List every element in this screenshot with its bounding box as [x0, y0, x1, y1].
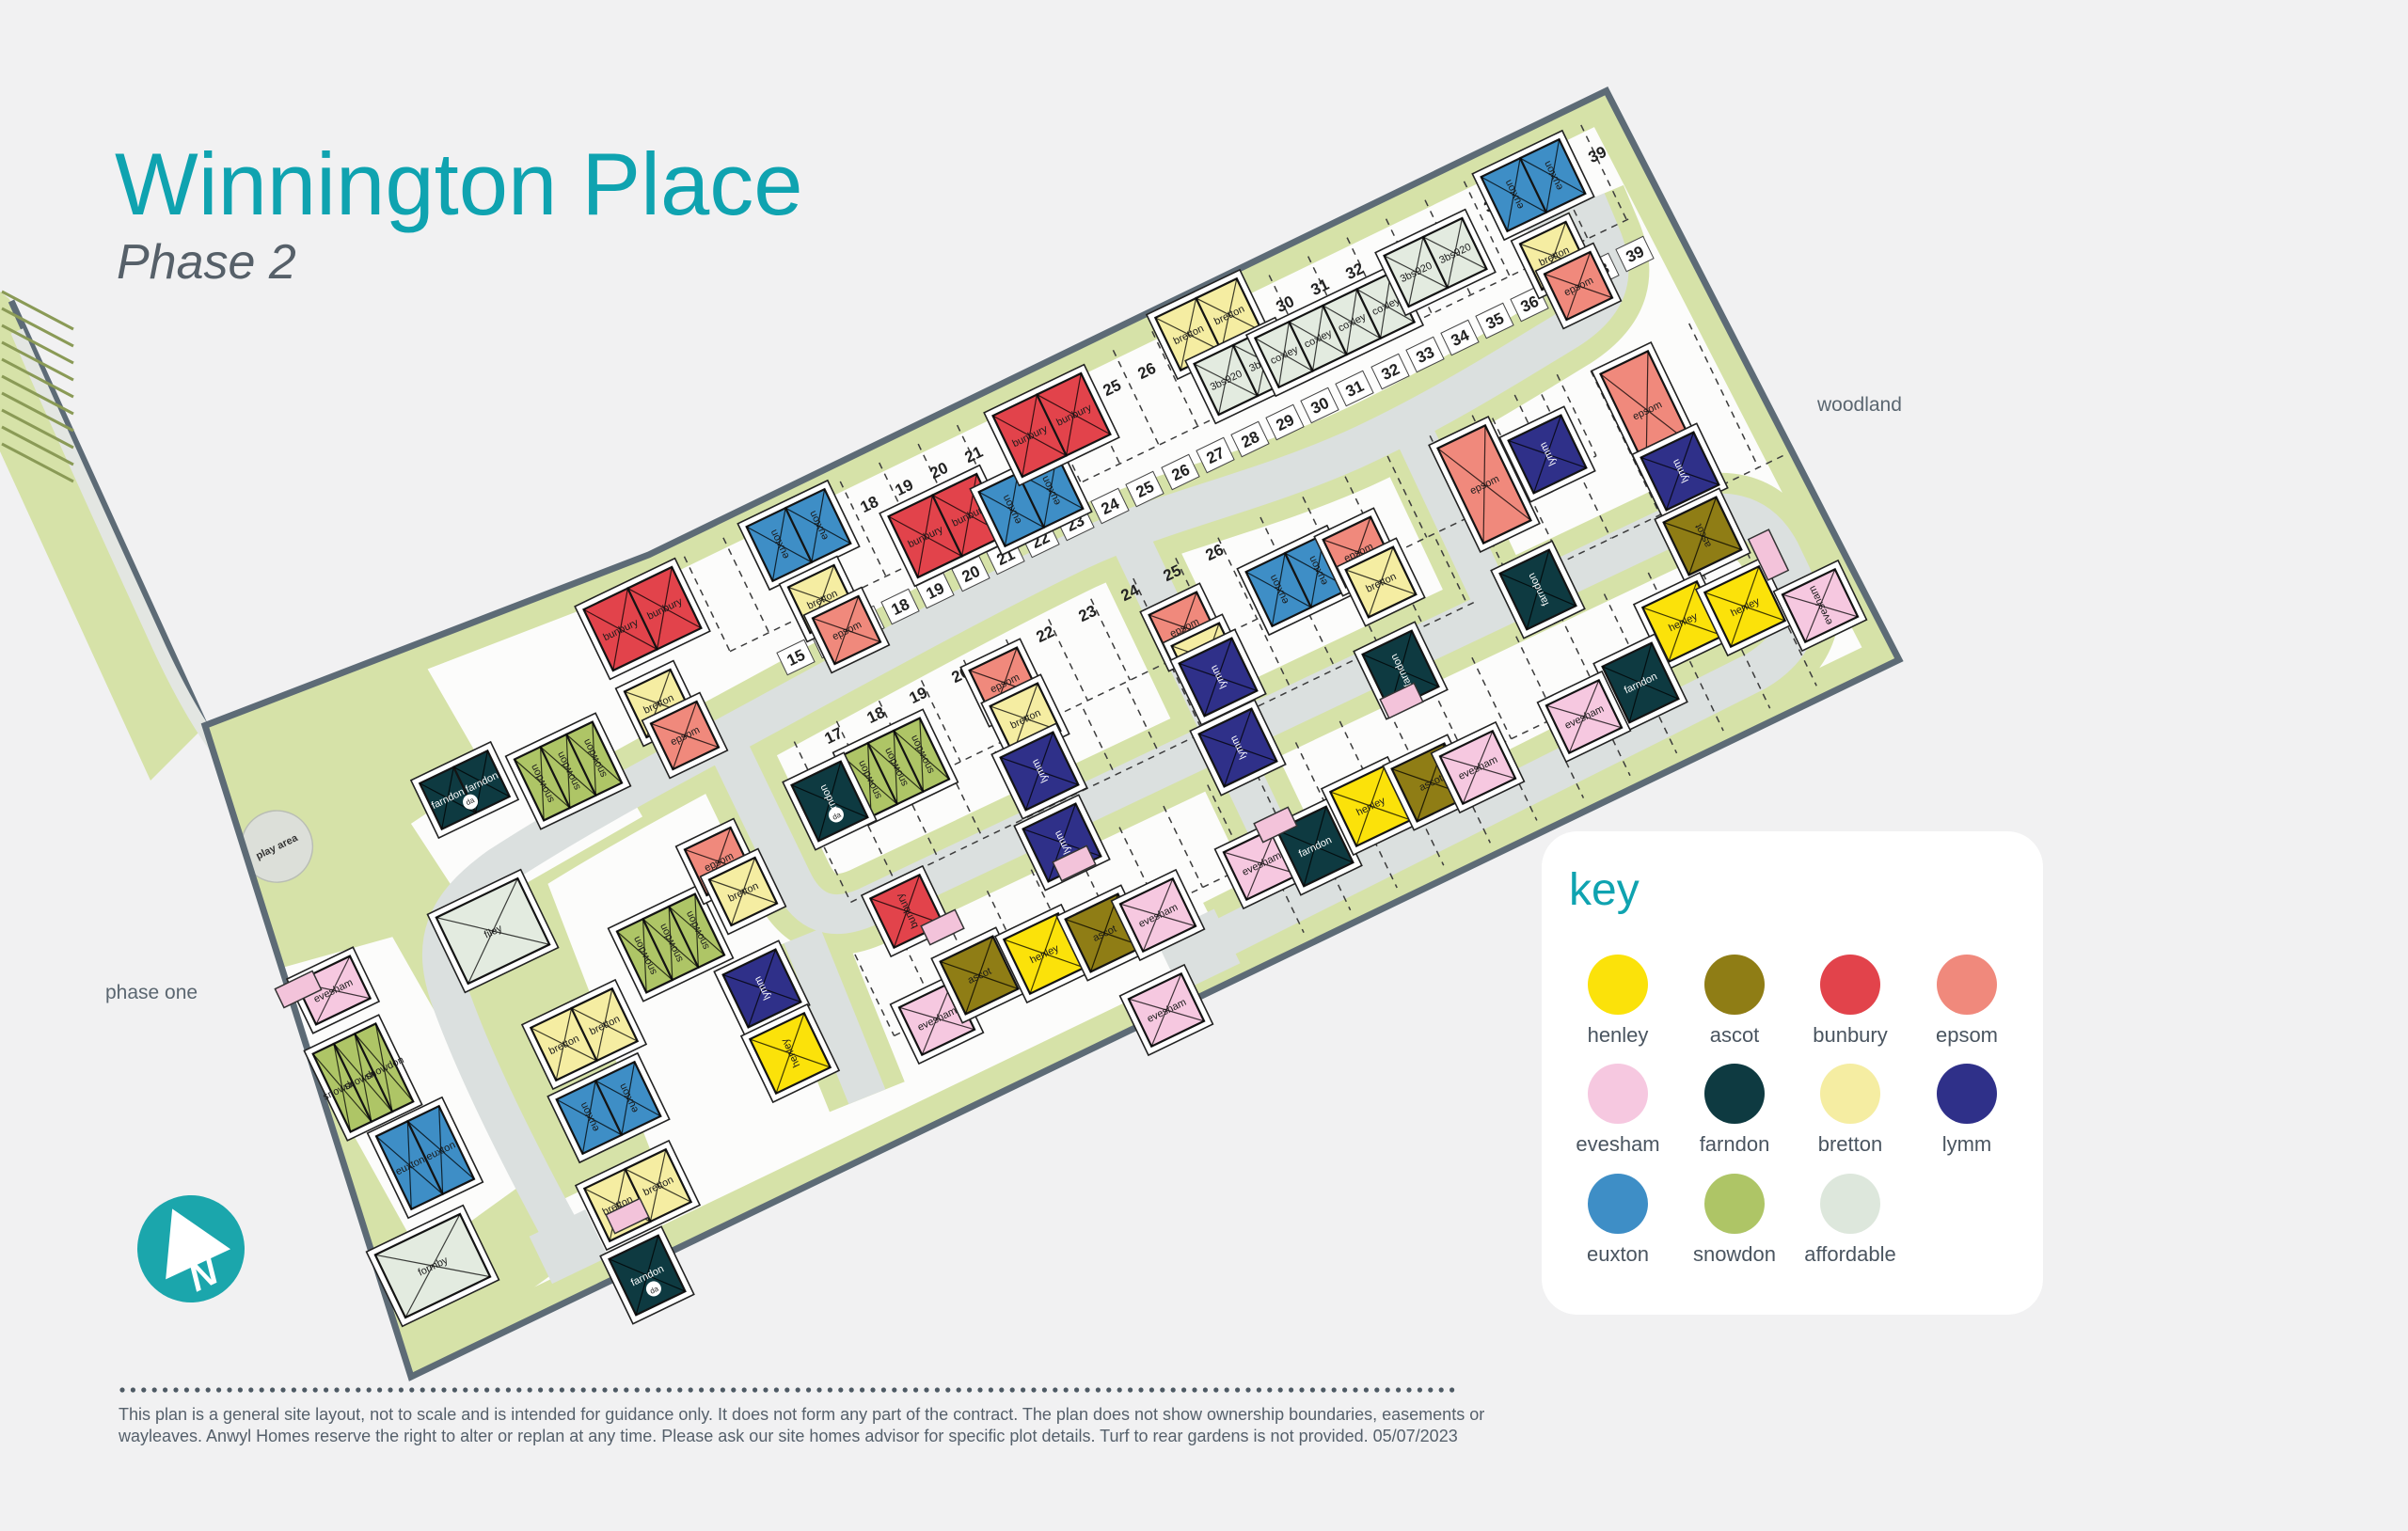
- svg-text:snowdon: snowdon: [1693, 1242, 1776, 1266]
- svg-text:This plan is a general site la: This plan is a general site layout, not …: [119, 1405, 1484, 1424]
- svg-text:bunbury: bunbury: [1813, 1023, 1888, 1047]
- svg-text:epsom: epsom: [1936, 1023, 1998, 1047]
- svg-text:Phase 2: Phase 2: [117, 235, 296, 290]
- svg-text:henley: henley: [1588, 1023, 1649, 1047]
- svg-text:farndon: farndon: [1700, 1132, 1770, 1156]
- svg-text:lymm: lymm: [1942, 1132, 1992, 1156]
- svg-text:phase one: phase one: [105, 982, 198, 1003]
- svg-text:Winnington Place: Winnington Place: [115, 134, 803, 233]
- svg-text:ascot: ascot: [1710, 1023, 1760, 1047]
- svg-text:affordable: affordable: [1804, 1242, 1895, 1266]
- svg-text:wayleaves. Anwyl Homes reserve: wayleaves. Anwyl Homes reserve the right…: [118, 1427, 1458, 1445]
- svg-text:key: key: [1569, 865, 1640, 915]
- svg-text:evesham: evesham: [1576, 1132, 1659, 1156]
- svg-text:euxton: euxton: [1587, 1242, 1649, 1266]
- svg-text:woodland: woodland: [1816, 394, 1902, 416]
- svg-text:bretton: bretton: [1818, 1132, 1883, 1156]
